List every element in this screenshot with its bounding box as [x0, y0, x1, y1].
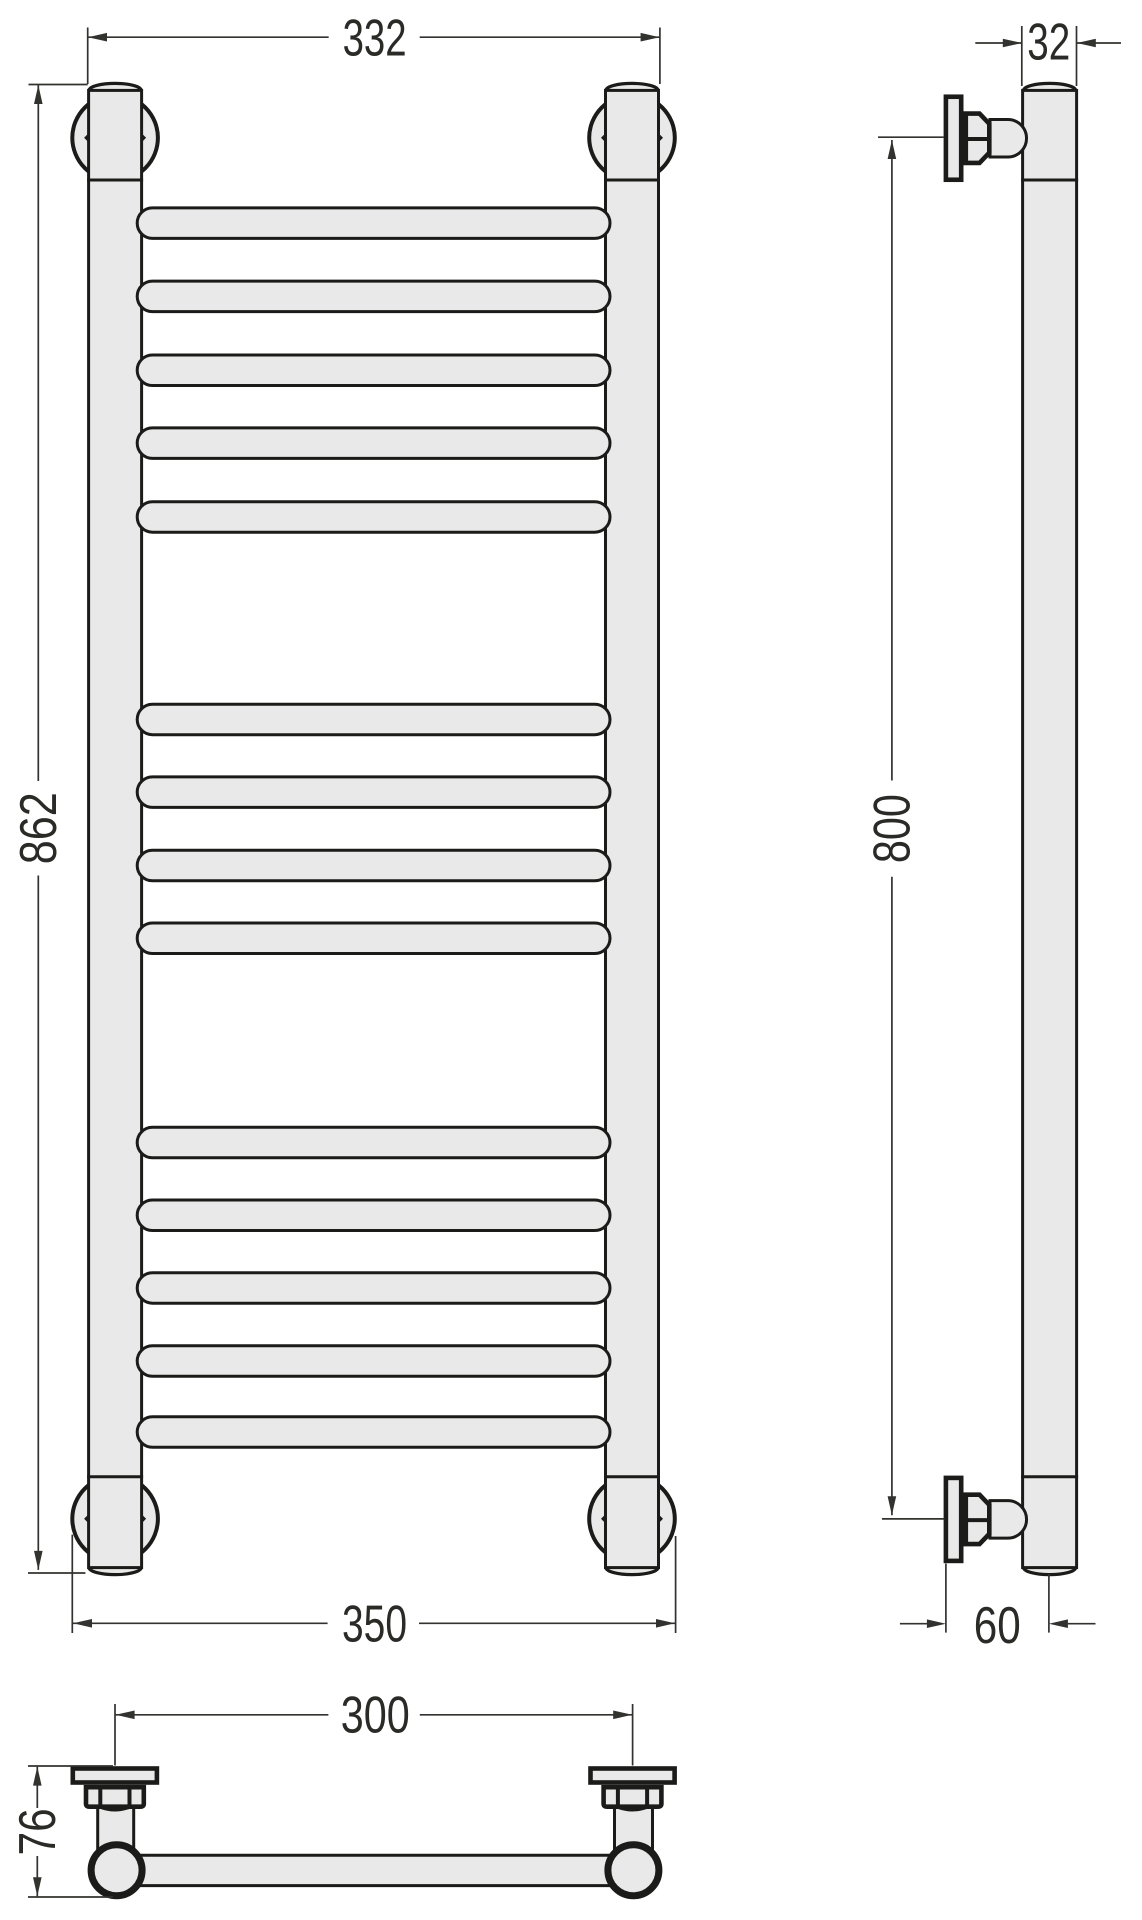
svg-text:332: 332: [343, 9, 407, 67]
svg-text:800: 800: [864, 794, 922, 863]
svg-text:350: 350: [342, 1595, 407, 1653]
svg-text:862: 862: [10, 792, 68, 864]
svg-text:76: 76: [9, 1808, 67, 1855]
svg-text:32: 32: [1027, 13, 1070, 71]
svg-text:60: 60: [974, 1597, 1021, 1655]
svg-text:300: 300: [341, 1687, 410, 1745]
